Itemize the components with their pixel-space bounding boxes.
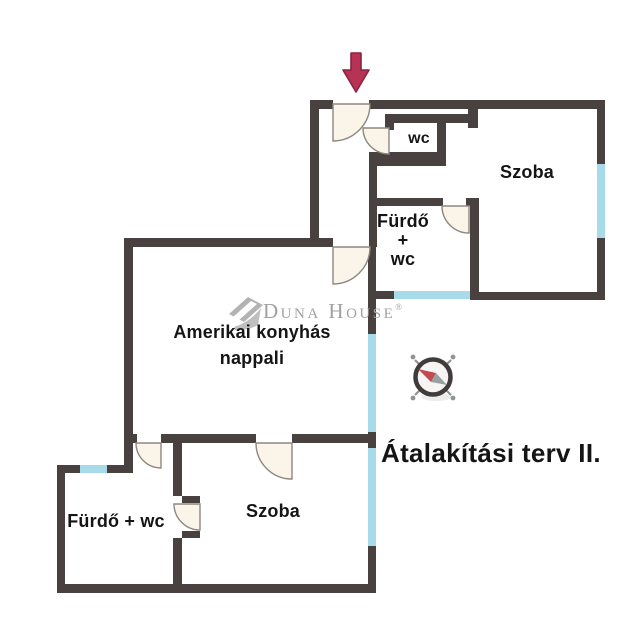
room-label-szoba-top: Szoba [462,162,592,183]
floor-plan: Duna House® wc Szoba Fürdő + wc Amerikai… [0,0,640,630]
compass-icon [411,355,456,401]
room-label-wc: wc [393,130,445,148]
room-label-furdo-wc-bottom: Fürdő + wc [40,511,192,532]
compass-point-mark [451,355,456,360]
compass-point-mark [411,355,416,360]
registered-mark: ® [395,302,402,312]
entrance-arrow-icon [343,53,369,92]
room-label-line: nappali [148,345,356,371]
door-swing-bathroom-bottom [136,443,161,468]
compass-point-mark [411,396,416,401]
room-label-line: + [361,231,445,250]
compass-point-mark [451,396,456,401]
room-label-line: wc [361,250,445,269]
door-swing-wc [363,128,389,154]
room-label-line: Fürdő [361,212,445,231]
room-label-nappali: Amerikai konyhás nappali [148,319,356,371]
plan-title: Átalakítási terv II. [381,438,601,469]
room-label-szoba-bottom: Szoba [208,501,338,522]
room-label-furdo-wc-middle: Fürdő + wc [361,212,445,269]
door-swing-bathroom-mid [442,206,469,233]
room-label-line: Amerikai konyhás [148,319,356,345]
door-swing-room-bottom [256,443,292,479]
